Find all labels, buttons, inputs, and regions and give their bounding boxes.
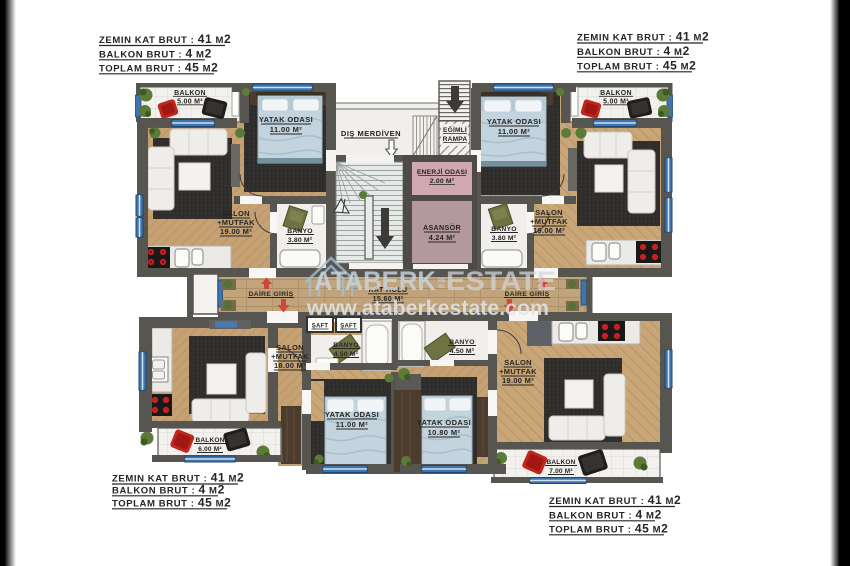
svg-text:+MUTFAK: +MUTFAK xyxy=(530,217,568,226)
svg-text:EĞİMLİ: EĞİMLİ xyxy=(443,125,467,134)
svg-text:18.00 M²: 18.00 M² xyxy=(274,361,306,370)
svg-text:7.00 M²: 7.00 M² xyxy=(549,468,573,475)
svg-text:BALKON BRUT : 4 M2: BALKON BRUT : 4 M2 xyxy=(549,508,662,522)
svg-text:SALON: SALON xyxy=(504,358,532,367)
svg-text:ZEMIN KAT BRUT : 41 M2: ZEMIN KAT BRUT : 41 M2 xyxy=(99,32,231,46)
svg-text:11.00 M²: 11.00 M² xyxy=(270,125,302,134)
svg-text:4.50 M²: 4.50 M² xyxy=(334,351,359,358)
svg-text:4.24 M²: 4.24 M² xyxy=(429,233,456,242)
svg-text:+MUTFAK: +MUTFAK xyxy=(271,352,309,361)
svg-text:YATAK ODASI: YATAK ODASI xyxy=(259,115,313,124)
svg-text:YATAK ODASI: YATAK ODASI xyxy=(325,410,379,419)
svg-text:6.00 M²: 6.00 M² xyxy=(198,446,222,453)
svg-text:TOPLAM BRUT : 45 M2: TOPLAM BRUT : 45 M2 xyxy=(549,522,668,536)
svg-text:+MUTFAK: +MUTFAK xyxy=(499,367,537,376)
svg-text:TOPLAM BRUT : 45 M2: TOPLAM BRUT : 45 M2 xyxy=(577,59,696,73)
svg-text:RAMPA: RAMPA xyxy=(443,136,468,143)
svg-text:BALKON BRUT : 4 M2: BALKON BRUT : 4 M2 xyxy=(99,47,212,61)
svg-text:BANYO: BANYO xyxy=(491,226,517,233)
svg-text:www.ataberkestate.com: www.ataberkestate.com xyxy=(306,297,549,320)
svg-text:10.80 M²: 10.80 M² xyxy=(428,428,461,437)
svg-text:AL: AL xyxy=(438,284,446,290)
svg-text:BALKON BRUT : 4 M2: BALKON BRUT : 4 M2 xyxy=(577,44,690,58)
svg-text:4.50 M²: 4.50 M² xyxy=(450,348,475,355)
svg-text:19.00 M²: 19.00 M² xyxy=(220,227,252,236)
svg-text:TOPLAM BRUT : 45 M2: TOPLAM BRUT : 45 M2 xyxy=(112,496,231,510)
svg-text:+MUTFAK: +MUTFAK xyxy=(217,218,255,227)
svg-text:BANYO: BANYO xyxy=(287,228,313,235)
svg-text:TOPLAM BRUT : 45 M2: TOPLAM BRUT : 45 M2 xyxy=(99,61,218,75)
svg-text:YATAK ODASI: YATAK ODASI xyxy=(487,117,541,126)
svg-text:SALON: SALON xyxy=(222,209,250,218)
svg-text:ATABERK: ATABERK xyxy=(314,266,436,296)
svg-text:BALKON: BALKON xyxy=(546,459,575,466)
svg-text:BALKON BRUT : 4 M2: BALKON BRUT : 4 M2 xyxy=(112,483,225,497)
svg-text:11.00 M²: 11.00 M² xyxy=(498,127,530,136)
svg-text:DAİRE GİRİŞ: DAİRE GİRİŞ xyxy=(249,290,294,298)
svg-text:ENERJİ ODASI: ENERJİ ODASI xyxy=(417,168,467,176)
svg-text:BANYO: BANYO xyxy=(333,342,359,349)
svg-text:ASANSÖR: ASANSÖR xyxy=(423,223,462,232)
svg-text:DIŞ MERDİVEN: DIŞ MERDİVEN xyxy=(341,129,401,138)
svg-text:19.00 M²: 19.00 M² xyxy=(502,376,534,385)
svg-text:19.00 M²: 19.00 M² xyxy=(533,226,565,235)
svg-text:YATAK ODASI: YATAK ODASI xyxy=(417,418,471,427)
svg-text:11.00 M²: 11.00 M² xyxy=(336,420,368,429)
svg-text:SALON: SALON xyxy=(535,208,563,217)
svg-text:SALON: SALON xyxy=(276,343,304,352)
svg-text:BANYO: BANYO xyxy=(449,339,475,346)
svg-text:ZEMIN KAT BRUT : 41 M2: ZEMIN KAT BRUT : 41 M2 xyxy=(549,493,681,507)
svg-text:2.00 M²: 2.00 M² xyxy=(430,178,455,185)
svg-text:BALKON: BALKON xyxy=(195,437,224,444)
svg-text:ZEMIN KAT BRUT : 41 M2: ZEMIN KAT BRUT : 41 M2 xyxy=(577,30,709,44)
svg-text:3.80 M²: 3.80 M² xyxy=(492,235,517,242)
svg-text:3.80 M²: 3.80 M² xyxy=(288,237,313,244)
svg-text:ESTATE: ESTATE xyxy=(446,266,556,296)
